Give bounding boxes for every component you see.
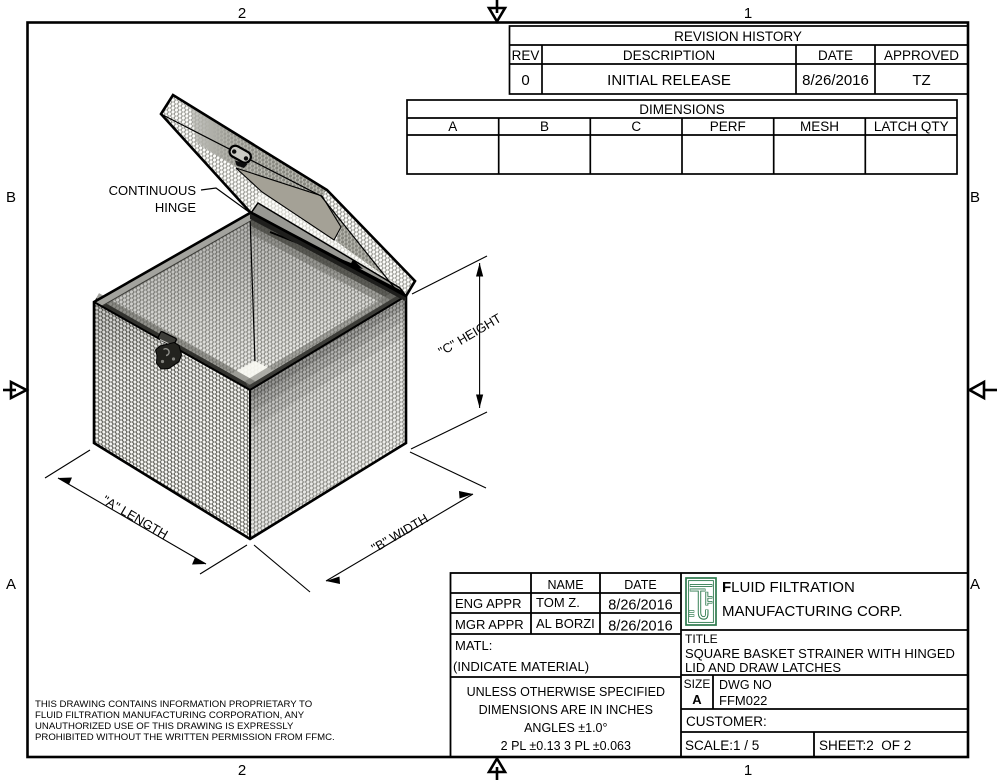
svg-text:SCALE:1 / 5: SCALE:1 / 5 [685,738,759,753]
svg-text:LATCH QTY: LATCH QTY [874,119,949,134]
svg-text:1: 1 [744,762,752,779]
svg-text:HINGE: HINGE [155,200,197,215]
svg-text:PERF: PERF [710,119,746,134]
svg-text:THIS DRAWING CONTAINS INFORMAT: THIS DRAWING CONTAINS INFORMATION PROPRI… [35,699,312,710]
svg-text:SIZE: SIZE [684,677,711,691]
svg-text:A: A [970,576,980,593]
svg-text:DATE: DATE [624,578,656,592]
svg-text:B: B [540,119,549,134]
svg-text:PROHIBITED WITHOUT THE WRITTEN: PROHIBITED WITHOUT THE WRITTEN PERMISSIO… [35,732,335,743]
svg-text:FFM022: FFM022 [719,693,767,708]
svg-text:SQUARE BASKET STRAINER WITH HI: SQUARE BASKET STRAINER WITH HINGED [685,646,955,661]
svg-text:DESCRIPTION: DESCRIPTION [623,48,715,63]
svg-text:(INDICATE MATERIAL): (INDICATE MATERIAL) [453,659,589,674]
svg-text:INITIAL RELEASE: INITIAL RELEASE [607,72,731,89]
svg-text:TOM Z.: TOM Z. [536,595,580,610]
svg-text:REVISION HISTORY: REVISION HISTORY [674,29,802,44]
svg-text:SHEET:2 OF 2: SHEET:2 OF 2 [819,738,911,753]
svg-text:TITLE: TITLE [685,632,718,646]
svg-text:REV: REV [512,48,540,63]
svg-text:TZ: TZ [912,72,930,89]
svg-text:ENG APPR: ENG APPR [455,596,521,611]
svg-text:CUSTOMER:: CUSTOMER: [686,714,767,729]
svg-text:8/26/2016: 8/26/2016 [608,598,673,614]
svg-text:ANGLES ±1.0°: ANGLES ±1.0° [524,721,607,735]
svg-text:CONTINUOUS: CONTINUOUS [109,183,197,198]
svg-text:DIMENSIONS ARE IN INCHES: DIMENSIONS ARE IN INCHES [479,703,653,717]
svg-text:MATL:: MATL: [455,638,492,653]
svg-text:APPROVED: APPROVED [884,48,959,63]
svg-text:UNAUTHORIZED USE OF THIS DRAWI: UNAUTHORIZED USE OF THIS DRAWING IS EXPR… [35,721,294,732]
svg-text:FLUID FILTRATION: FLUID FILTRATION [722,579,855,596]
svg-text:2 PL ±0.13 3 PL ±0.063: 2 PL ±0.13 3 PL ±0.063 [501,739,631,753]
svg-text:B: B [970,189,980,206]
svg-text:A: A [448,119,457,134]
svg-text:2: 2 [238,5,246,22]
svg-text:0: 0 [521,72,529,89]
svg-text:MGR APPR: MGR APPR [455,617,524,632]
svg-text:MANUFACTURING CORP.: MANUFACTURING CORP. [722,603,903,620]
svg-text:8/26/2016: 8/26/2016 [608,619,673,635]
svg-text:2: 2 [238,762,246,779]
svg-text:MESH: MESH [800,119,839,134]
svg-text:NAME: NAME [547,578,583,592]
svg-text:UNLESS OTHERWISE SPECIFIED: UNLESS OTHERWISE SPECIFIED [467,685,665,699]
svg-text:DATE: DATE [818,48,853,63]
svg-text:B: B [6,189,16,206]
svg-text:1: 1 [744,5,752,22]
svg-text:8/26/2016: 8/26/2016 [802,72,869,89]
svg-text:FLUID FILTRATION MANUFACTURING: FLUID FILTRATION MANUFACTURING CORPORATI… [35,710,305,721]
svg-text:DIMENSIONS: DIMENSIONS [639,102,725,117]
svg-text:AL BORZI: AL BORZI [536,616,595,631]
svg-text:C: C [631,119,641,134]
svg-text:A: A [692,692,702,707]
svg-text:LID AND DRAW LATCHES: LID AND DRAW LATCHES [685,660,841,675]
svg-text:DWG NO: DWG NO [719,678,772,692]
svg-text:A: A [6,576,16,593]
